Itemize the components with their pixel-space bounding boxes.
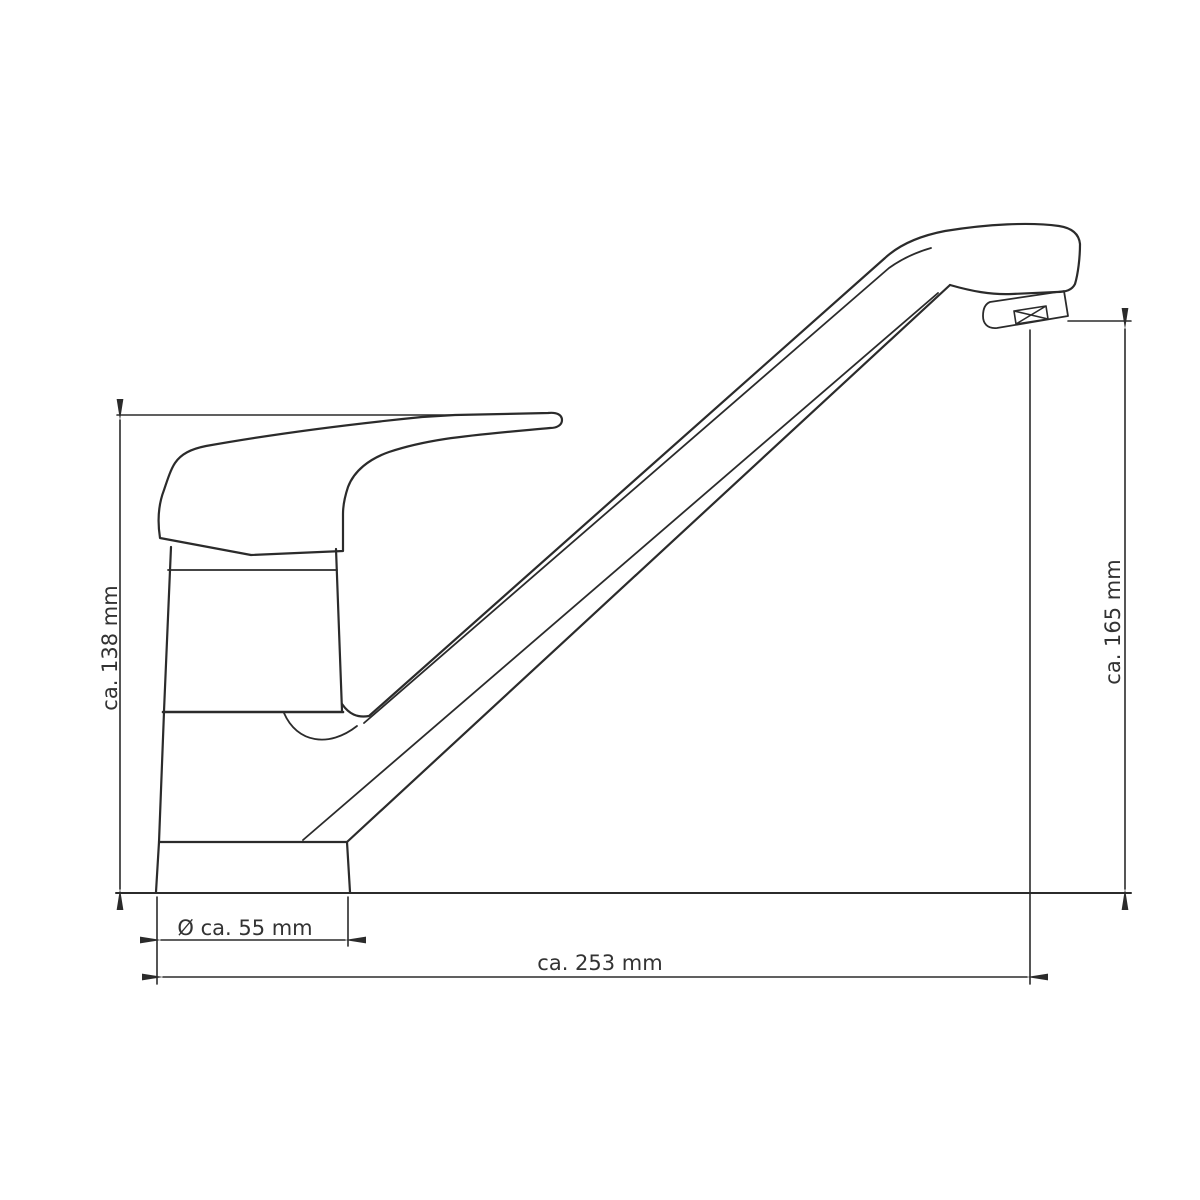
dimension-label-height-right: ca. 165 mm: [1101, 559, 1125, 684]
dimension-annotations: ca. 138 mm ca. 165 mm Ø ca. 55 mm ca. 25…: [98, 321, 1131, 984]
faucet-dimension-drawing: ca. 138 mm ca. 165 mm Ø ca. 55 mm ca. 25…: [0, 0, 1200, 1200]
spout-body-saddle-curve: [284, 713, 357, 740]
faucet-outline: [116, 224, 1131, 893]
body-upper-edges: [164, 547, 342, 711]
dimension-label-length-total: ca. 253 mm: [537, 951, 662, 975]
spout-top-edge-and-head: [342, 224, 1080, 717]
technical-drawing-canvas: ca. 138 mm ca. 165 mm Ø ca. 55 mm ca. 25…: [0, 0, 1200, 1200]
spout-bottom-edge: [347, 285, 950, 842]
aerator-screen-icon: [1014, 306, 1048, 324]
dimension-label-height-left: ca. 138 mm: [98, 585, 122, 710]
handle-lever: [159, 413, 562, 555]
body-lower-left-edge: [159, 712, 164, 842]
dimension-label-base-diameter: Ø ca. 55 mm: [177, 916, 312, 940]
spout-top-inner-line: [364, 248, 931, 723]
spout-bottom-inner-line: [303, 293, 938, 840]
faucet-base: [156, 842, 350, 892]
